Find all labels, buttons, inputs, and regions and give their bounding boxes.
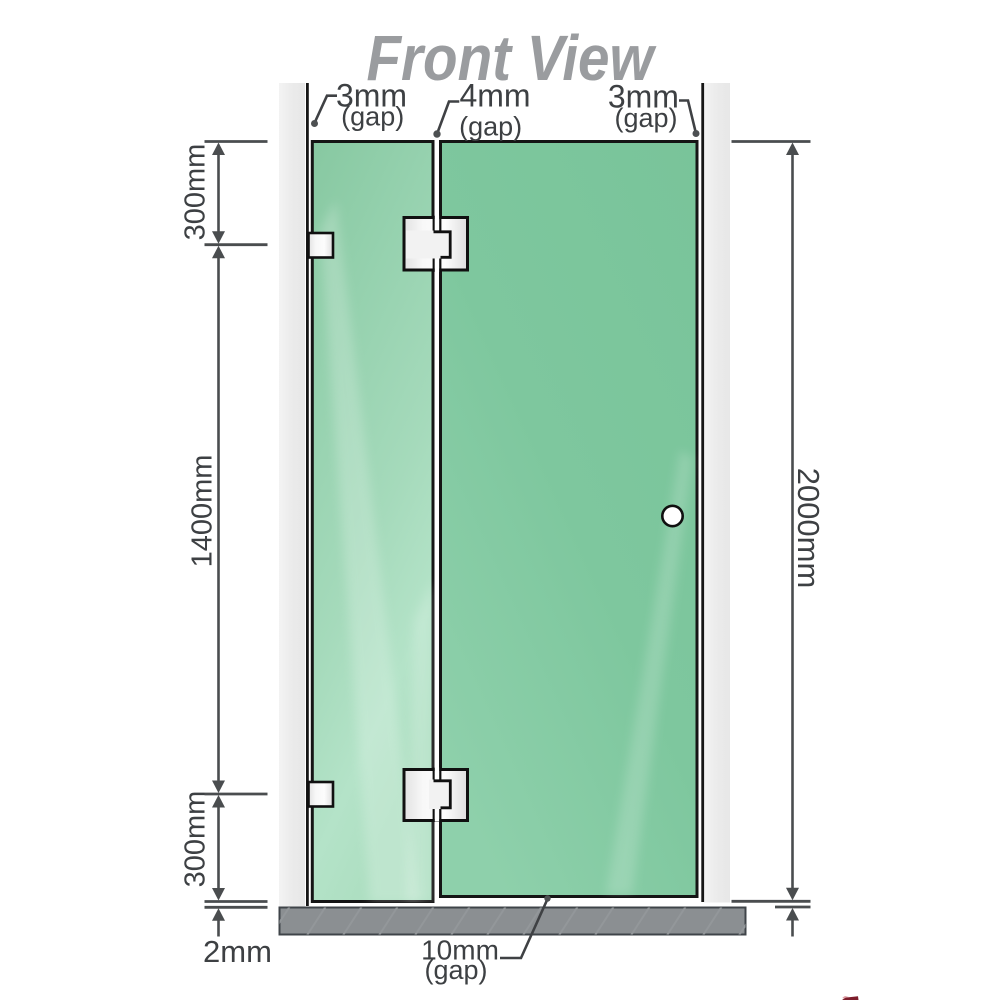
- svg-text:(gap): (gap): [614, 103, 677, 133]
- svg-text:2mm: 2mm: [203, 934, 272, 969]
- svg-text:(gap): (gap): [424, 955, 487, 985]
- svg-text:(gap): (gap): [341, 102, 404, 132]
- svg-text:1400mm: 1400mm: [187, 455, 219, 568]
- svg-text:4mm: 4mm: [459, 78, 530, 114]
- svg-text:300mm: 300mm: [180, 791, 212, 888]
- svg-text:2000mm: 2000mm: [791, 468, 826, 589]
- svg-text:300mm: 300mm: [180, 144, 212, 241]
- svg-text:(gap): (gap): [459, 112, 522, 142]
